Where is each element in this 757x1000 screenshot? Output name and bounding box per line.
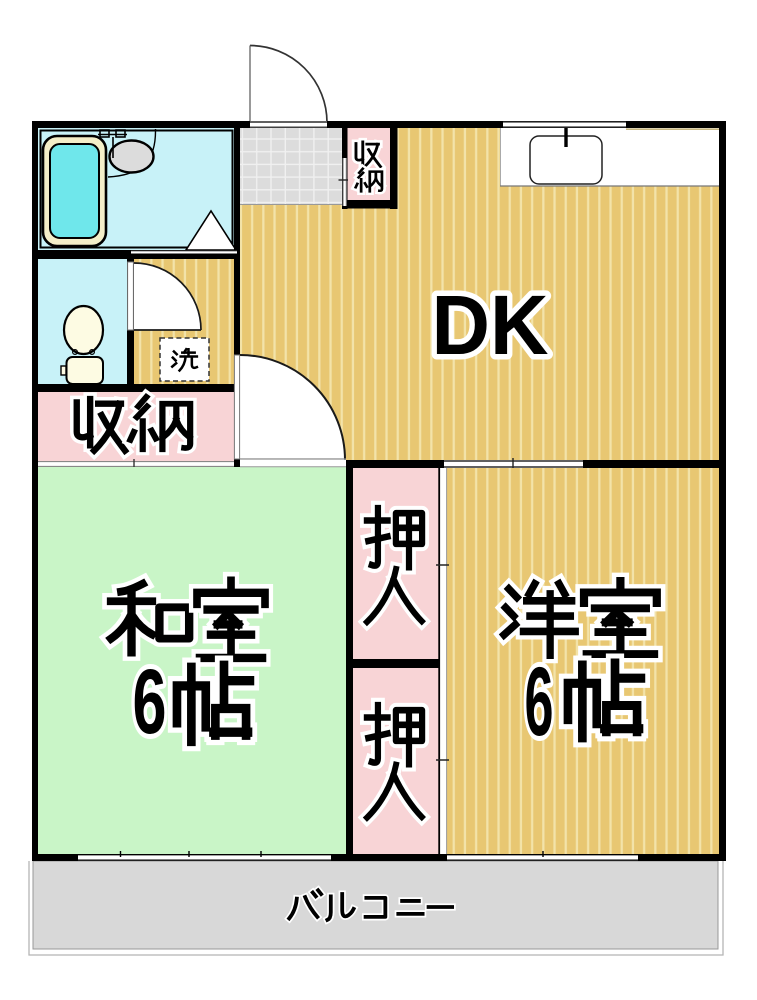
svg-text:6: 6: [133, 651, 167, 753]
svg-text:DK: DK: [432, 278, 549, 372]
svg-text:6: 6: [525, 647, 554, 756]
